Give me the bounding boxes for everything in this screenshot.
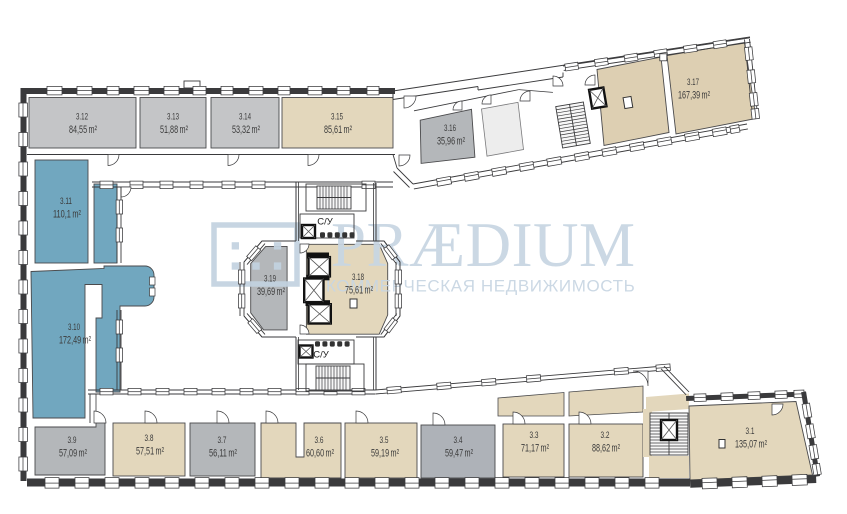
svg-text:3.7: 3.7: [218, 435, 227, 445]
svg-text:57,09 m²: 57,09 m²: [59, 448, 87, 460]
svg-text:84,55 m²: 84,55 m²: [69, 124, 97, 136]
svg-text:56,11 m²: 56,11 m²: [209, 448, 237, 460]
svg-text:3.11: 3.11: [60, 196, 72, 206]
svg-text:88,62 m²: 88,62 m²: [592, 443, 620, 455]
svg-text:PRÆDIUM: PRÆDIUM: [331, 210, 636, 280]
svg-text:71,17 m²: 71,17 m²: [521, 443, 549, 455]
svg-text:172,49 m²: 172,49 m²: [59, 335, 91, 347]
svg-text:3.3: 3.3: [530, 430, 539, 440]
svg-text:60,60 m²: 60,60 m²: [306, 448, 334, 460]
svg-text:3.16: 3.16: [444, 123, 456, 133]
svg-text:3.18: 3.18: [352, 272, 364, 282]
svg-text:3.4: 3.4: [454, 435, 463, 445]
svg-text:35,96 m²: 35,96 m²: [437, 136, 465, 148]
svg-text:3.1: 3.1: [746, 426, 755, 436]
svg-text:3.8: 3.8: [145, 433, 154, 443]
svg-text:135,07 m²: 135,07 m²: [735, 439, 767, 451]
svg-text:3.9: 3.9: [68, 435, 77, 445]
svg-text:3.2: 3.2: [601, 430, 610, 440]
svg-text:3.19: 3.19: [264, 274, 276, 284]
svg-text:59,19 m²: 59,19 m²: [371, 448, 399, 460]
svg-text:3.14: 3.14: [239, 112, 251, 122]
svg-text:3.17: 3.17: [687, 77, 699, 87]
svg-text:3.10: 3.10: [68, 322, 80, 332]
svg-text:167,39 m²: 167,39 m²: [678, 90, 710, 102]
svg-text:51,88 m²: 51,88 m²: [160, 124, 188, 136]
svg-text:3.13: 3.13: [167, 112, 179, 122]
svg-text:3.5: 3.5: [380, 435, 389, 445]
svg-text:С/У: С/У: [317, 217, 334, 228]
svg-text:59,47 m²: 59,47 m²: [445, 448, 473, 460]
svg-text:53,32 m²: 53,32 m²: [232, 124, 260, 136]
svg-text:85,61 m²: 85,61 m²: [324, 124, 352, 136]
svg-text:39,69 m²: 39,69 m²: [257, 286, 285, 298]
svg-text:3.6: 3.6: [315, 435, 324, 445]
svg-text:3.12: 3.12: [76, 112, 88, 122]
svg-text:110,1 m²: 110,1 m²: [53, 209, 81, 221]
svg-text:75,61 m²: 75,61 m²: [345, 285, 373, 297]
svg-text:3.15: 3.15: [331, 112, 343, 122]
svg-text:57,51 m²: 57,51 m²: [136, 446, 164, 458]
svg-text:С/У: С/У: [313, 350, 330, 361]
